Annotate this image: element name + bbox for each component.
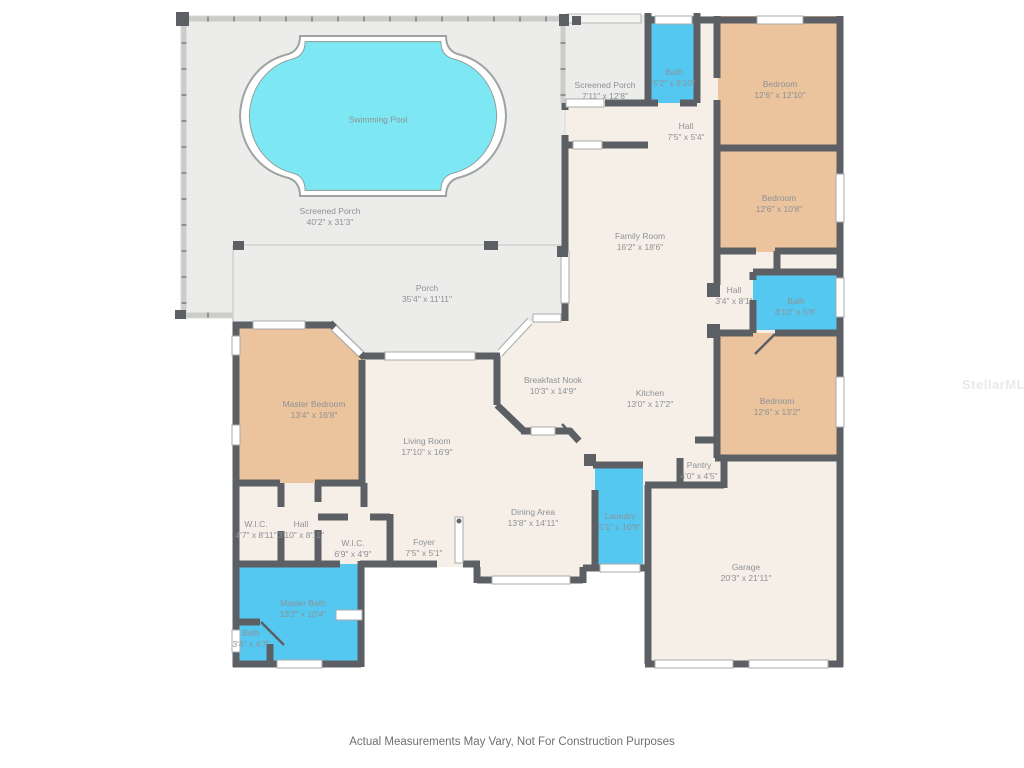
room-dims: 3'10" x 8'11"	[278, 530, 324, 541]
room-name: Breakfast Nook	[524, 375, 582, 386]
label-wic-1: W.I.C.4'7" x 8'11"	[235, 519, 276, 541]
label-bedroom-1: Bedroom12'6" x 12'10"	[754, 79, 805, 101]
room-name: Pantry	[680, 460, 717, 471]
room-name: Kitchen	[627, 388, 674, 399]
label-hall-1: Hall7'5" x 5'4"	[667, 121, 704, 143]
label-bedroom-2: Bedroom12'6" x 10'8"	[756, 193, 803, 215]
label-bath-2: Bath8'10" x 5'6"	[775, 296, 817, 318]
label-laundry: Laundry5'1" x 10'8"	[599, 511, 641, 533]
room-name: Master Bedroom	[283, 399, 346, 410]
room-dims: 7'5" x 5'4"	[667, 132, 704, 143]
room-name: Living Room	[401, 436, 452, 447]
label-wic-2: W.I.C.6'9" x 4'9"	[334, 538, 371, 560]
room-dims: 3'4" x 8'1"	[715, 296, 752, 307]
vanity	[336, 610, 362, 620]
room-name: Hall	[278, 519, 324, 530]
room-name: Garage	[721, 562, 772, 573]
room-dims: 4'0" x 4'5"	[680, 471, 717, 482]
label-screened-porch-small: Screened Porch7'11" x 12'8"	[575, 80, 636, 102]
room-dims: 13'4" x 16'8"	[283, 410, 346, 421]
room-dims: 7'5" x 5'1"	[405, 548, 442, 559]
label-hall-3: Hall3'10" x 8'11"	[278, 519, 324, 541]
label-garage: Garage20'3" x 21'11"	[721, 562, 772, 584]
room-name: Dining Area	[508, 507, 559, 518]
label-foyer: Foyer7'5" x 5'1"	[405, 537, 442, 559]
room-name: Bedroom	[756, 193, 803, 204]
label-master-bedroom: Master Bedroom13'4" x 16'8"	[283, 399, 346, 421]
label-hall-2: Hall3'4" x 8'1"	[715, 285, 752, 307]
room-name: Master Bath	[280, 598, 327, 609]
room-dims: 12'6" x 10'8"	[756, 204, 803, 215]
room-dims: 40'2" x 31'3"	[300, 217, 361, 228]
room-name: Family Room	[615, 231, 665, 242]
room-dims: 12'6" x 13'2"	[754, 407, 801, 418]
label-kitchen: Kitchen13'0" x 17'2"	[627, 388, 674, 410]
room-name: Laundry	[599, 511, 641, 522]
room-name: Bath	[232, 628, 269, 639]
room-dims: 17'10" x 16'9"	[401, 447, 452, 458]
label-master-bath: Master Bath13'2" x 10'4"	[280, 598, 327, 620]
room-dims: 3'4" x 4'7"	[232, 639, 269, 650]
bath-1-fill	[648, 16, 697, 103]
room-dims: 8'10" x 5'6"	[775, 307, 817, 318]
room-name: Screened Porch	[300, 206, 361, 217]
label-bath-1: Bath5'2" x 8'10"	[653, 67, 695, 89]
room-dims: 6'9" x 4'9"	[334, 549, 371, 560]
room-dims: 10'3" x 14'9"	[524, 386, 582, 397]
room-dims: 35'4" x 11'11"	[402, 294, 452, 305]
room-dims: 5'1" x 10'8"	[599, 522, 641, 533]
label-porch: Porch35'4" x 11'11"	[402, 283, 452, 305]
room-dims: 16'2" x 18'6"	[615, 242, 665, 253]
label-screened-porch: Screened Porch40'2" x 31'3"	[300, 206, 361, 228]
label-breakfast-nook: Breakfast Nook10'3" x 14'9"	[524, 375, 582, 397]
floor-plan-drawing	[0, 0, 1024, 768]
room-name: Screened Porch	[575, 80, 636, 91]
disclaimer-text: Actual Measurements May Vary, Not For Co…	[349, 736, 675, 748]
room-dims: 7'11" x 12'8"	[575, 91, 636, 102]
room-name: Hall	[667, 121, 704, 132]
label-living-room: Living Room17'10" x 16'9"	[401, 436, 452, 458]
label-family-room: Family Room16'2" x 18'6"	[615, 231, 665, 253]
floor-plan: Swimming Pool Screened Porch40'2" x 31'3…	[0, 0, 1024, 768]
room-name: Bedroom	[754, 79, 805, 90]
label-bedroom-3: Bedroom12'6" x 13'2"	[754, 396, 801, 418]
front-door	[455, 517, 463, 563]
label-dining-area: Dining Area13'8" x 14'11"	[508, 507, 559, 529]
room-name: Porch	[402, 283, 452, 294]
room-name: Hall	[715, 285, 752, 296]
room-dims: 12'6" x 12'10"	[754, 90, 805, 101]
room-dims: 4'7" x 8'11"	[235, 530, 276, 541]
room-name: Bath	[775, 296, 817, 307]
room-name: Bedroom	[754, 396, 801, 407]
room-name: W.I.C.	[334, 538, 371, 549]
room-name: W.I.C.	[235, 519, 276, 530]
room-dims: 5'2" x 8'10"	[653, 78, 695, 89]
label-swimming-pool: Swimming Pool	[349, 114, 408, 125]
room-name: Foyer	[405, 537, 442, 548]
room-name: Swimming Pool	[349, 114, 408, 125]
label-bath-3: Bath3'4" x 4'7"	[232, 628, 269, 650]
room-dims: 20'3" x 21'11"	[721, 573, 772, 584]
stellar-mls-watermark: StellarMLS	[962, 377, 1024, 392]
room-dims: 13'8" x 14'11"	[508, 518, 559, 529]
room-dims: 13'2" x 10'4"	[280, 609, 327, 620]
room-dims: 13'0" x 17'2"	[627, 399, 674, 410]
label-pantry: Pantry4'0" x 4'5"	[680, 460, 717, 482]
room-name: Bath	[653, 67, 695, 78]
